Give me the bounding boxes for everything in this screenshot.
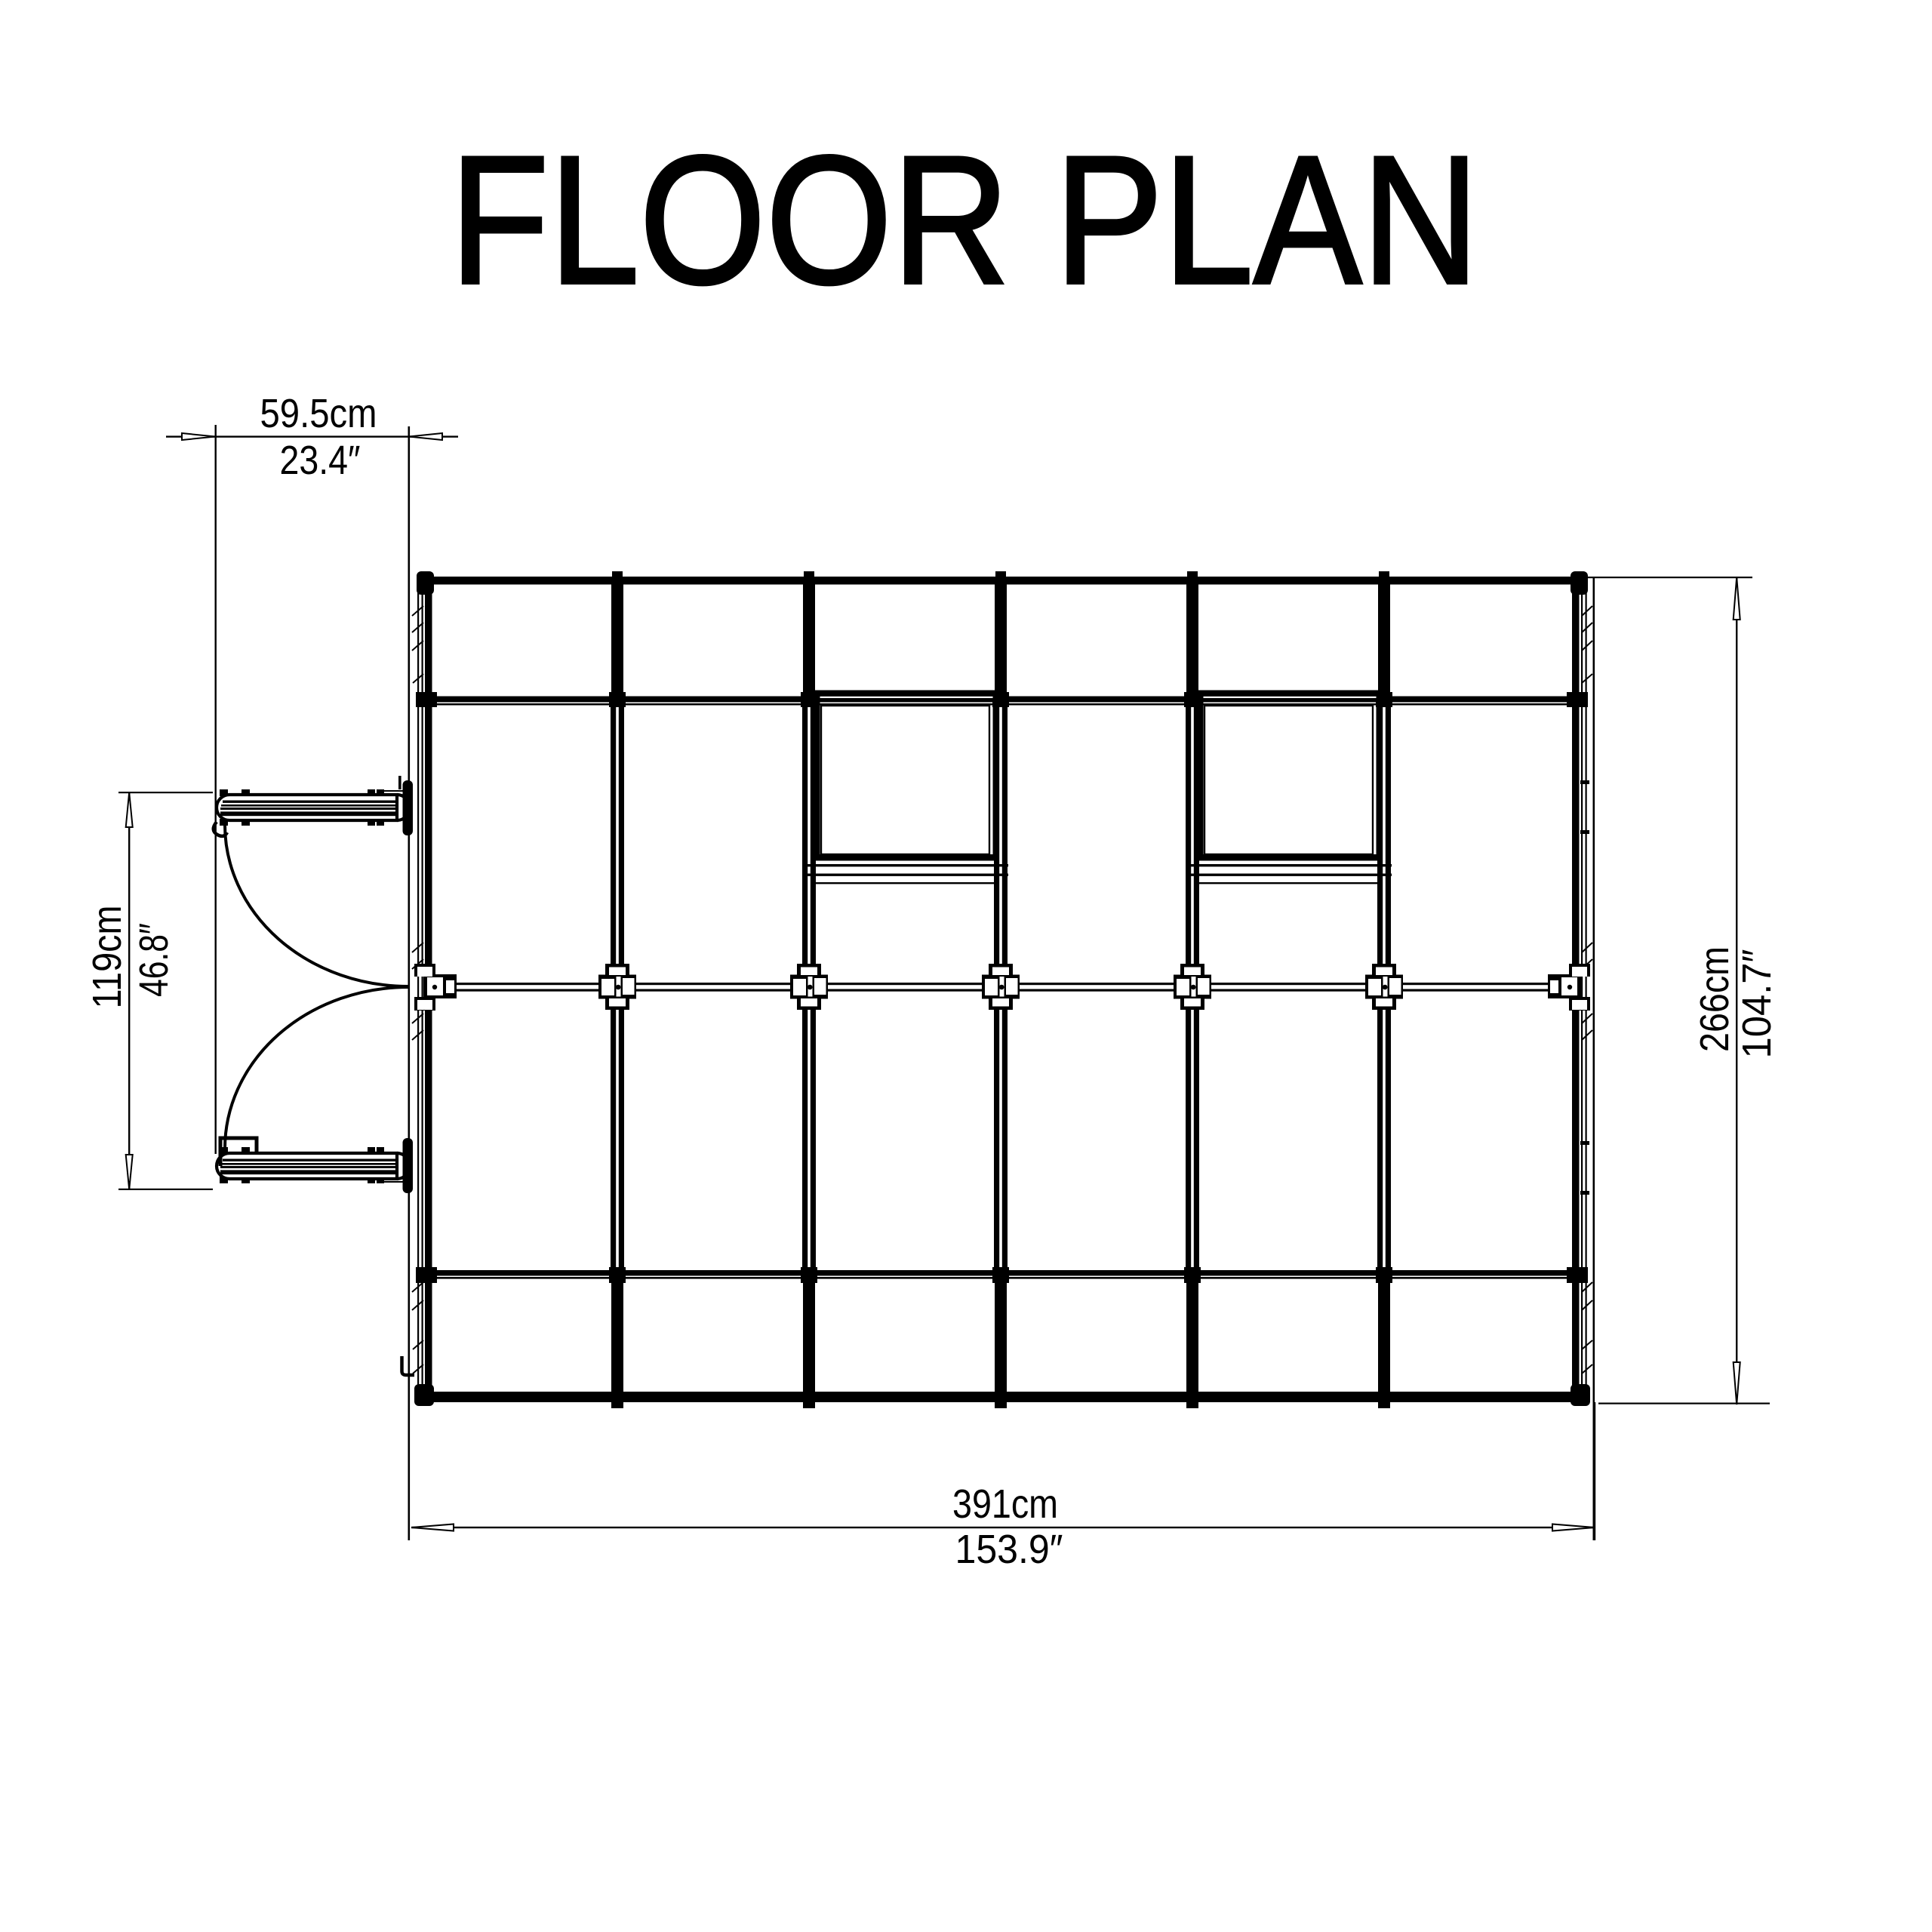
svg-text:104.7″: 104.7″ <box>1734 949 1780 1059</box>
svg-text:FLOOR PLAN: FLOOR PLAN <box>450 118 1479 322</box>
svg-text:153.9″: 153.9″ <box>955 1527 1063 1572</box>
svg-text:46.8″: 46.8″ <box>131 923 177 997</box>
svg-text:59.5cm: 59.5cm <box>260 391 377 436</box>
svg-text:391cm: 391cm <box>952 1481 1058 1527</box>
svg-text:119cm: 119cm <box>85 906 130 1009</box>
svg-text:23.4″: 23.4″ <box>280 438 361 483</box>
svg-text:266cm: 266cm <box>1692 946 1737 1052</box>
